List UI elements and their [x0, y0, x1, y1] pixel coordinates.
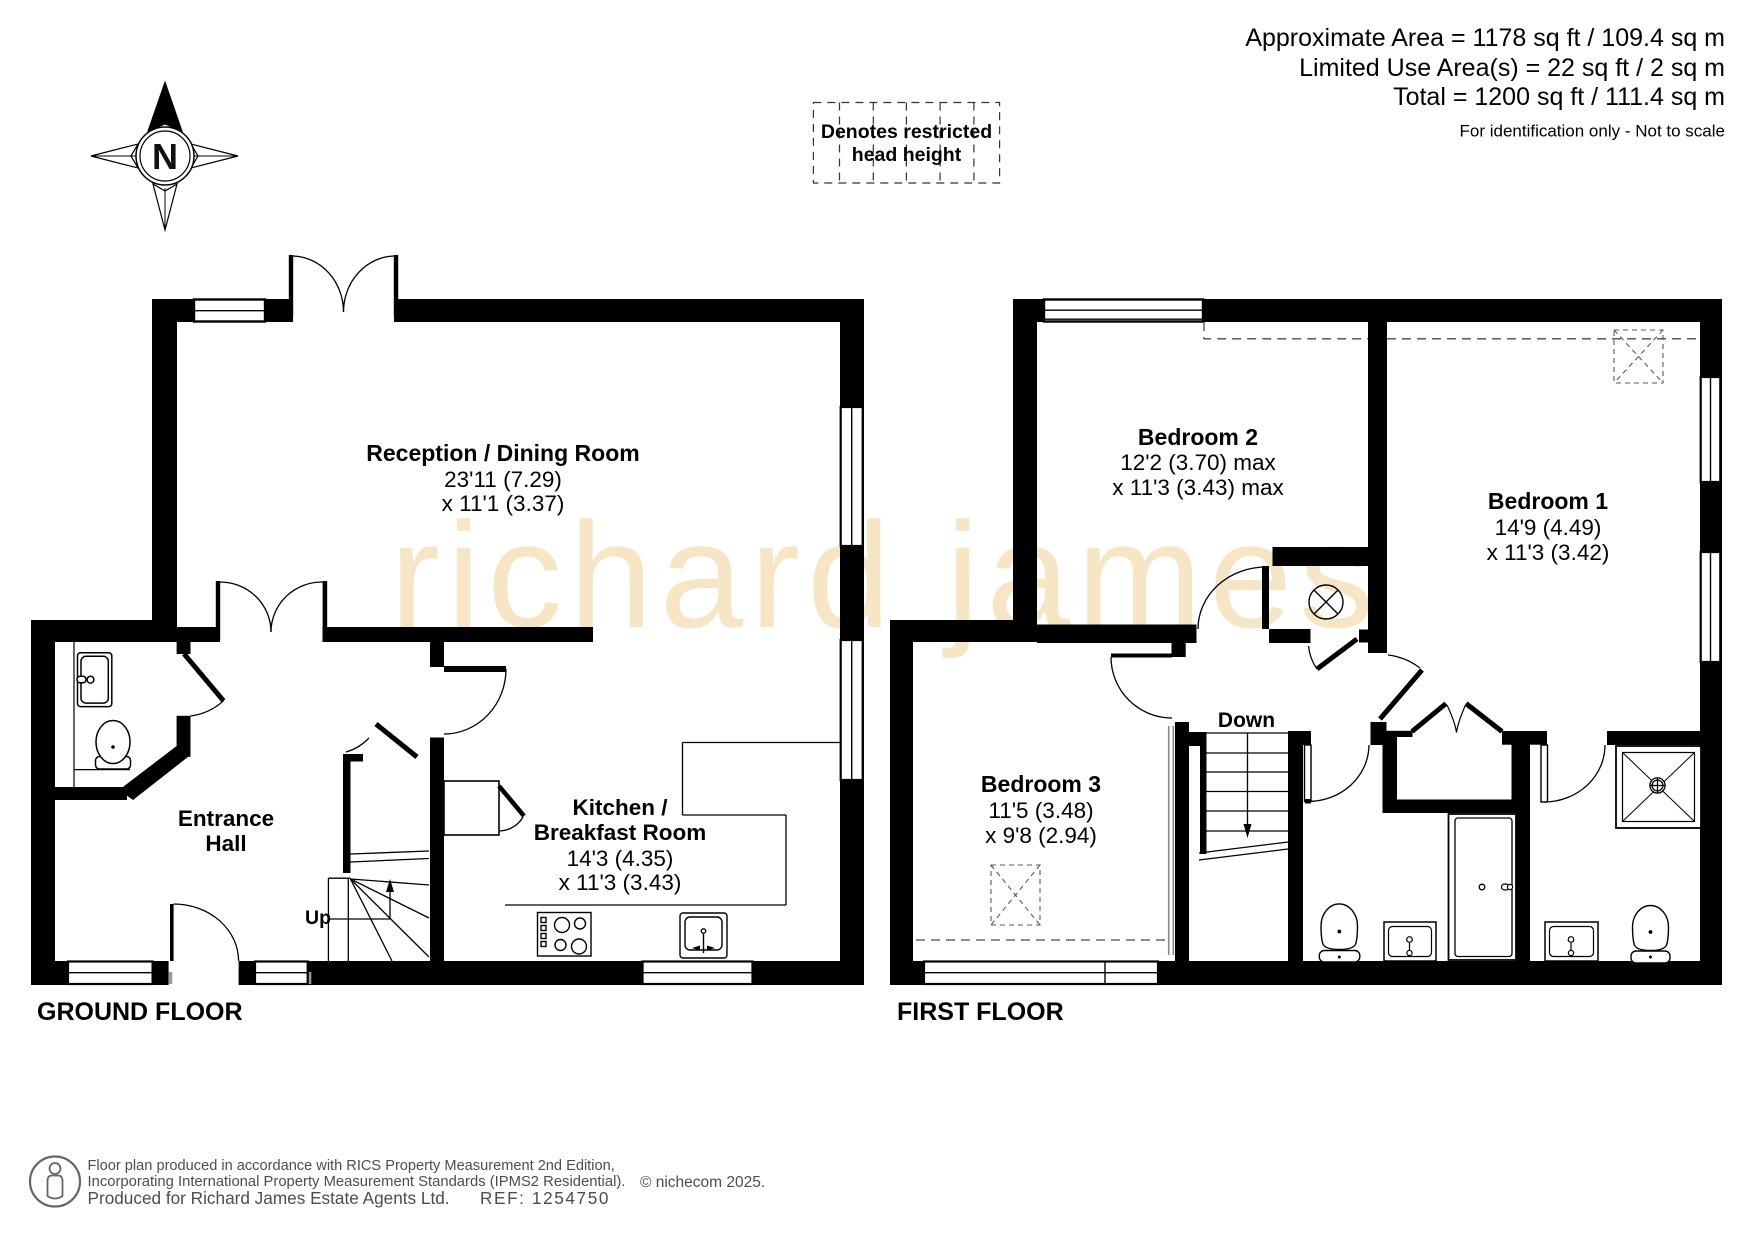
svg-text:N: N — [152, 136, 178, 177]
svg-text:Entrance: Entrance — [178, 806, 274, 831]
svg-text:FIRST FLOOR: FIRST FLOOR — [897, 998, 1064, 1026]
svg-text:23'11 (7.29): 23'11 (7.29) — [444, 467, 562, 492]
svg-text:Up: Up — [305, 907, 331, 929]
svg-text:14'9 (4.49): 14'9 (4.49) — [1495, 515, 1602, 540]
svg-text:14'3 (4.35): 14'3 (4.35) — [567, 846, 674, 871]
svg-text:x 9'8 (2.94): x 9'8 (2.94) — [985, 823, 1097, 848]
svg-text:Breakfast Room: Breakfast Room — [534, 820, 707, 845]
svg-text:Approximate Area = 1178 sq ft: Approximate Area = 1178 sq ft / 109.4 sq… — [1245, 24, 1725, 52]
svg-text:12'2 (3.70) max: 12'2 (3.70) max — [1120, 450, 1276, 475]
svg-text:Limited Use Area(s) = 22 sq ft: Limited Use Area(s) = 22 sq ft / 2 sq m — [1299, 54, 1725, 82]
svg-text:Bedroom 2: Bedroom 2 — [1138, 424, 1258, 450]
svg-text:© nichecom 2025.: © nichecom 2025. — [640, 1174, 765, 1191]
svg-text:Down: Down — [1218, 709, 1275, 732]
svg-text:x 11'1 (3.37): x 11'1 (3.37) — [442, 491, 565, 516]
svg-text:Reception / Dining Room: Reception / Dining Room — [366, 440, 639, 466]
svg-text:Bedroom 3: Bedroom 3 — [981, 771, 1101, 797]
svg-text:For identification only - Not: For identification only - Not to scale — [1459, 122, 1725, 141]
svg-text:REF: 1254750: REF: 1254750 — [480, 1188, 610, 1208]
svg-text:Floor plan produced in accorda: Floor plan produced in accordance with R… — [88, 1158, 615, 1174]
svg-text:11'5 (3.48): 11'5 (3.48) — [988, 798, 1093, 823]
svg-text:GROUND FLOOR: GROUND FLOOR — [37, 998, 243, 1026]
svg-text:Denotes restricted: Denotes restricted — [821, 121, 992, 143]
svg-text:Kitchen /: Kitchen / — [572, 795, 668, 820]
svg-text:x 11'3 (3.43): x 11'3 (3.43) — [559, 870, 682, 895]
svg-text:Total = 1200 sq ft / 111.4 sq: Total = 1200 sq ft / 111.4 sq m — [1393, 83, 1725, 111]
svg-text:Hall: Hall — [205, 831, 246, 856]
svg-text:Bedroom 1: Bedroom 1 — [1488, 488, 1608, 514]
svg-text:Produced for Richard James Est: Produced for Richard James Estate Agents… — [88, 1188, 450, 1208]
svg-text:head height: head height — [852, 144, 962, 166]
svg-text:x 11'3 (3.42): x 11'3 (3.42) — [1487, 540, 1610, 565]
svg-text:x 11'3 (3.43) max: x 11'3 (3.43) max — [1112, 475, 1284, 500]
